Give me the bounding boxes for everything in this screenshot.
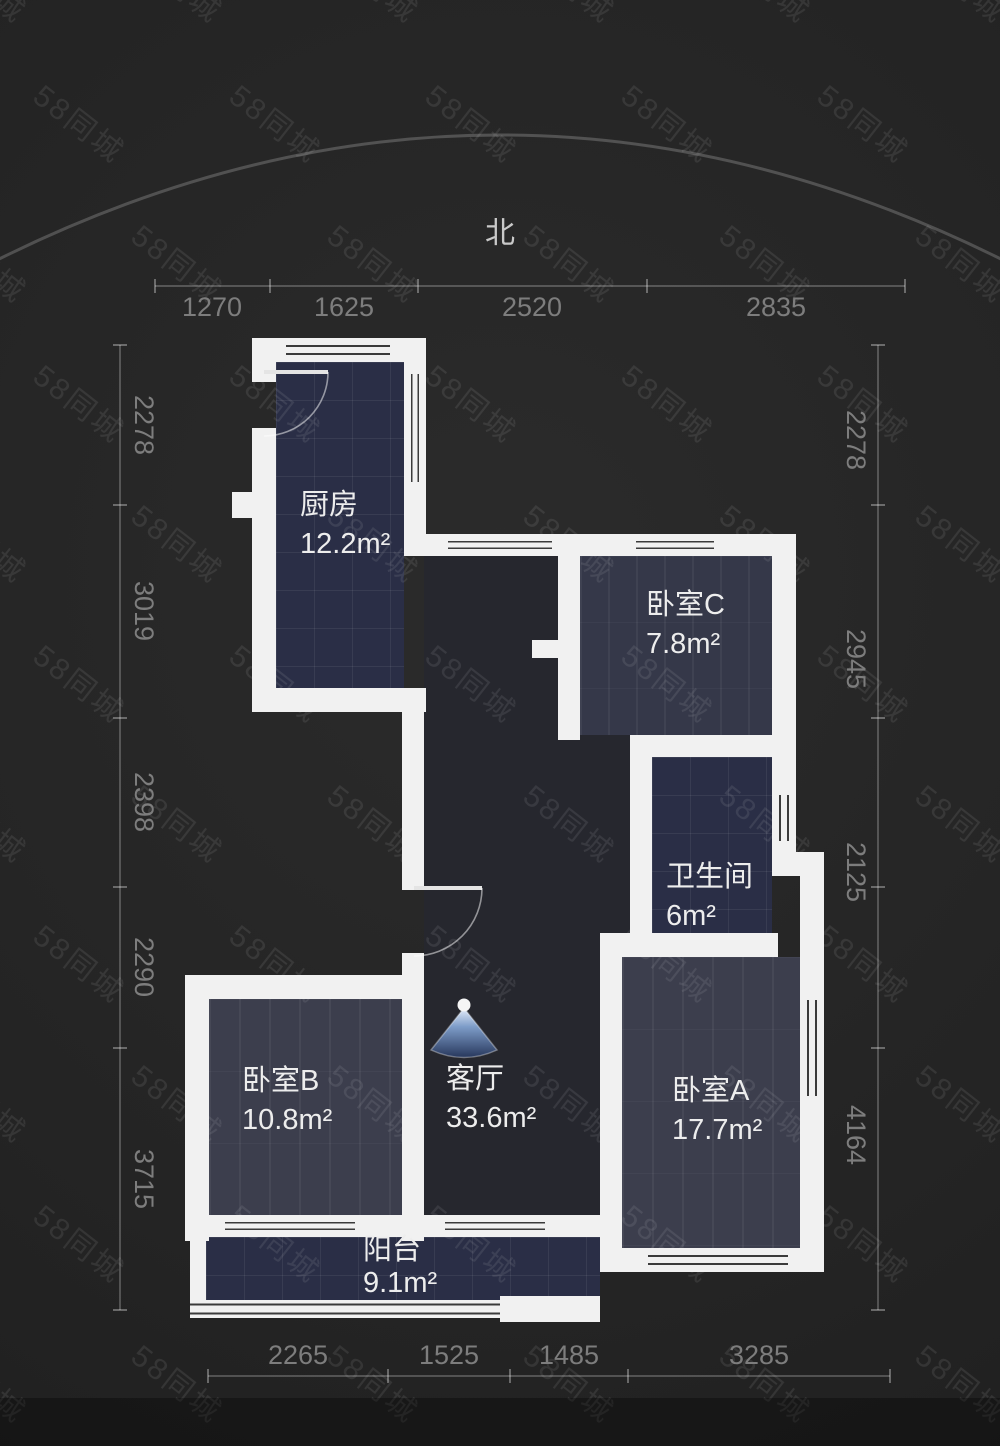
wall: [185, 975, 209, 1241]
watermark: 58同城: [810, 1192, 920, 1292]
bedroom-b-area: 10.8m²: [242, 1104, 332, 1136]
dimension-tick: [417, 279, 419, 293]
dimension-label: 2278: [128, 370, 159, 480]
dimension-label: 2520: [487, 292, 577, 323]
living-area: 33.6m²: [446, 1102, 536, 1134]
dimension-tick: [154, 279, 156, 293]
wall: [500, 1296, 600, 1322]
room-label-bedroom-c: 卧室C 7.8m²: [646, 586, 725, 664]
dimension-label: 2265: [253, 1340, 343, 1371]
dimension-tick: [113, 1309, 127, 1311]
balcony-area: 9.1m²: [363, 1267, 437, 1299]
dimension-label: 2945: [840, 604, 871, 714]
room-label-living: 客厅 33.6m²: [446, 1060, 536, 1138]
dimension-tick: [904, 279, 906, 293]
dimension-label: 3715: [128, 1124, 159, 1234]
wall: [252, 688, 426, 712]
watermark: 58同城: [810, 912, 920, 1012]
dimension-label: 1525: [404, 1340, 494, 1371]
watermark: 58同城: [908, 1052, 1000, 1152]
dimension-label: 2835: [731, 292, 821, 323]
wall: [185, 975, 424, 999]
dimension-tick: [269, 279, 271, 293]
watermark: 58同城: [0, 772, 38, 872]
dimension-tick: [871, 1309, 885, 1311]
dimension-tick: [646, 279, 648, 293]
bedroom-c-name: 卧室C: [646, 589, 725, 621]
dimension-line-bottom: [208, 1375, 890, 1377]
window: [448, 538, 552, 552]
bedroom-c-area: 7.8m²: [646, 628, 720, 660]
kitchen-door-arc: [262, 370, 330, 438]
dimension-tick: [113, 344, 127, 346]
wall: [558, 534, 580, 740]
dimension-label: 3285: [714, 1340, 804, 1371]
wall: [630, 735, 652, 957]
watermark: 58同城: [614, 352, 724, 452]
dimension-label: 2125: [840, 817, 871, 927]
wall: [252, 428, 276, 712]
dimension-label: 1625: [299, 292, 389, 323]
wall: [600, 933, 778, 957]
window: [804, 1000, 820, 1096]
ceiling-light-icon: [418, 996, 510, 1068]
room-label-bedroom-b: 卧室B 10.8m²: [242, 1062, 332, 1140]
dimension-tick: [387, 1369, 389, 1383]
room-label-kitchen: 厨房 12.2m²: [300, 486, 390, 564]
dimension-tick: [627, 1369, 629, 1383]
floor-plan-canvas: 北: [0, 0, 1000, 1446]
balcony-railing: [190, 1300, 500, 1318]
wall-stub: [232, 492, 252, 518]
wall: [402, 688, 424, 890]
room-label-bedroom-a: 卧室A 17.7m²: [672, 1072, 762, 1150]
dimension-tick: [113, 717, 127, 719]
kitchen-area: 12.2m²: [300, 528, 390, 560]
bedroom-a-area: 17.7m²: [672, 1114, 762, 1146]
dimension-label: 4164: [840, 1080, 871, 1190]
dimension-tick: [113, 504, 127, 506]
window: [636, 538, 714, 552]
dimension-label: 2290: [128, 912, 159, 1022]
dimension-tick: [871, 504, 885, 506]
north-arc: [0, 0, 1000, 300]
dimension-label: 1270: [167, 292, 257, 323]
watermark: 58同城: [908, 492, 1000, 592]
dimension-tick: [207, 1369, 209, 1383]
dimension-tick: [113, 886, 127, 888]
dimension-line-top: [155, 285, 905, 287]
window: [648, 1252, 788, 1268]
dimension-tick: [871, 886, 885, 888]
window: [286, 342, 390, 358]
bottom-shade: [0, 1398, 1000, 1446]
dimension-tick: [871, 717, 885, 719]
dimension-label: 2398: [128, 747, 159, 857]
living-name: 客厅: [446, 1063, 504, 1095]
bathroom-area: 6m²: [666, 900, 716, 932]
room-label-balcony: 阳台 9.1m²: [363, 1234, 437, 1300]
window: [225, 1219, 355, 1233]
watermark: 58同城: [0, 1052, 38, 1152]
bedroom-a-name: 卧室A: [672, 1075, 749, 1107]
bathroom-name: 卫生间: [666, 861, 753, 893]
dimension-line-left: [119, 345, 121, 1310]
watermark: 58同城: [418, 352, 528, 452]
watermark: 58同城: [908, 772, 1000, 872]
room-label-bathroom: 卫生间 6m²: [666, 858, 753, 936]
dimension-tick: [871, 344, 885, 346]
dimension-tick: [509, 1369, 511, 1383]
dimension-tick: [113, 1047, 127, 1049]
kitchen-name: 厨房: [300, 489, 358, 521]
dimension-label: 3019: [128, 556, 159, 666]
dimension-label: 2278: [840, 385, 871, 495]
dimension-tick: [889, 1369, 891, 1383]
balcony-door: [445, 1219, 545, 1233]
balcony-name: 阳台: [363, 1234, 421, 1266]
dimension-tick: [871, 1047, 885, 1049]
north-label: 北: [470, 208, 530, 252]
window: [408, 374, 422, 482]
watermark: 58同城: [0, 492, 38, 592]
window: [776, 795, 792, 841]
wall-stub: [532, 640, 558, 658]
entry-door-arc: [412, 886, 484, 958]
dimension-line-right: [877, 345, 879, 1310]
bedroom-b-name: 卧室B: [242, 1065, 319, 1097]
dimension-label: 1485: [524, 1340, 614, 1371]
